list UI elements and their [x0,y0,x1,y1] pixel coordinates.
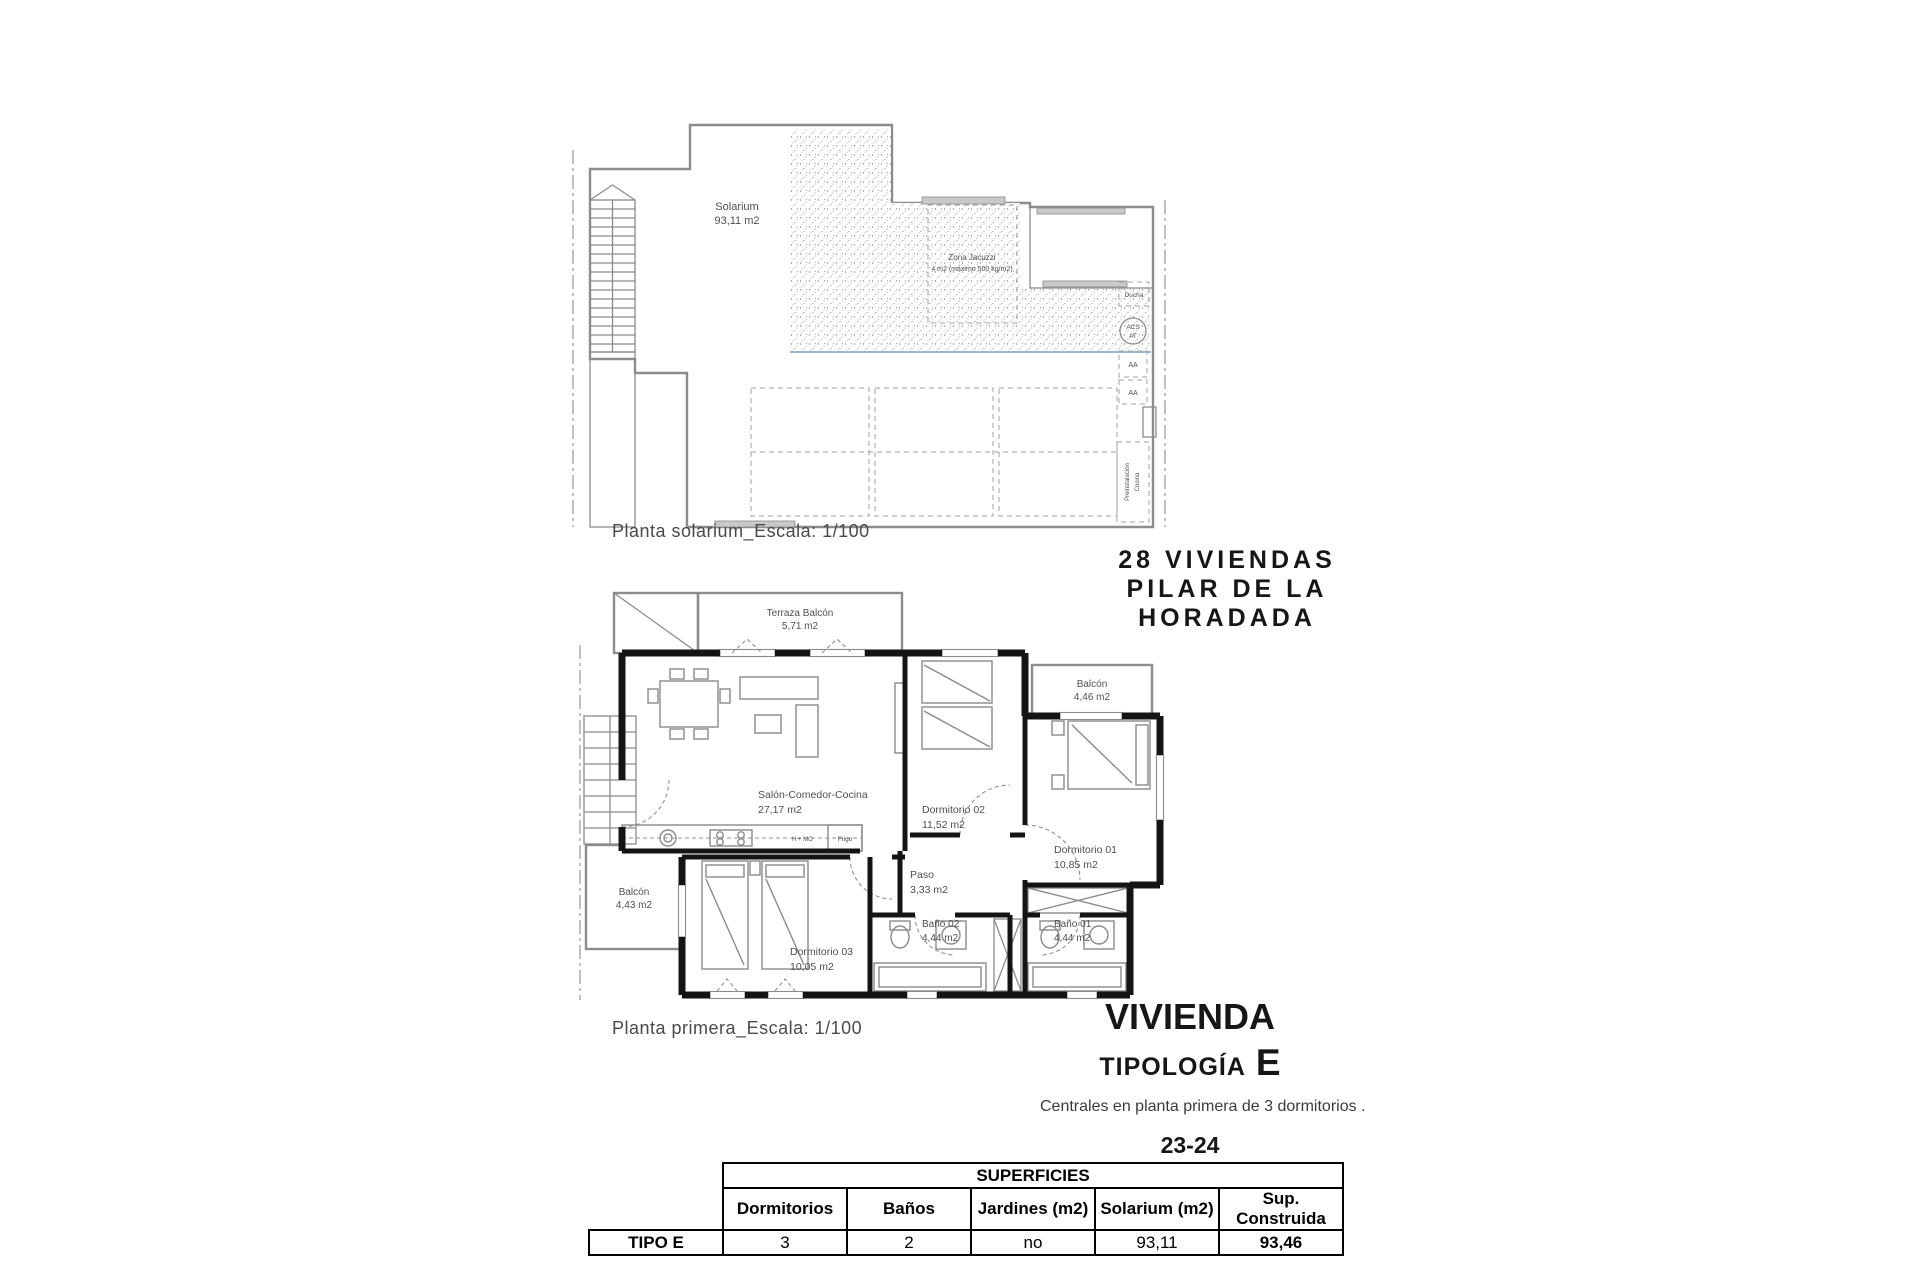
dwelling-title-block: VIVIENDA TIPOLOGÍAE Centrales en planta … [1040,998,1340,1159]
col-header-solarium: Solarium (m2) [1095,1188,1219,1230]
terraza-balcon [614,593,902,653]
row-label-tipo-e: TIPO E [589,1230,723,1255]
value-banos: 2 [847,1230,971,1255]
paso-label: Paso [910,869,934,881]
table-spacer [589,1188,723,1230]
col-header-dormitorios: Dormitorios [723,1188,847,1230]
ducha-label: Ducha [1125,292,1144,299]
balcon03-area: 4,43 m2 [616,900,653,911]
cocina-label: Cocina [1135,472,1141,491]
pergola-gravel-zone [790,129,1151,352]
jacuzzi-maxload-label: 4 m2 (máximo 500 kg/m2) [931,266,1012,273]
col-header-jardines: Jardines (m2) [971,1188,1095,1230]
table-row: TIPO E 3 2 no 93,11 93,46 [589,1230,1343,1255]
aa-label-1: AA [1128,362,1138,369]
dorm01-label: Dormitorio 01 [1054,844,1117,856]
col-header-construida: Sup. Construida [1219,1188,1343,1230]
terraza-label: Terraza Balcón [767,608,834,619]
acs-label: ACS [1126,324,1140,331]
table-group-header: SUPERFICIES [723,1163,1343,1188]
dorm02-area: 11,52 m2 [922,819,965,831]
surfaces-table: SUPERFICIES Dormitorios Baños Jardines (… [588,1162,1344,1256]
aa-unit-1: AA [1119,351,1147,377]
table-spacer [589,1163,723,1188]
tipologia-letter: E [1256,1042,1281,1083]
dorm03-label: Dormitorio 03 [790,946,853,958]
dwelling-title: VIVIENDA [1040,998,1340,1036]
side-strip [590,352,635,527]
solarium-room-area: 93,11 m2 [714,215,759,227]
balcon01-area: 4,46 m2 [1074,692,1111,703]
solarium-caption: Planta solarium_Escala: 1/100 [612,521,870,542]
acs-sub-label: AT [1129,333,1137,340]
dorm03-area: 10,05 m2 [790,961,834,973]
value-construida: 93,46 [1219,1230,1343,1255]
bano01-area: 4,44 m2 [1054,933,1091,944]
bano02-label: Baño 02 [922,919,960,930]
floor-below-dashed-outline [751,388,1117,516]
value-jardines: no [971,1230,1095,1255]
aa-label-2: AA [1128,390,1138,397]
first-floor-plan-drawing: H + MO Frigo [570,585,1170,1005]
value-solarium: 93,11 [1095,1230,1219,1255]
terraza-area: 5,71 m2 [782,621,819,632]
bano02-area: 4,44 m2 [922,933,959,944]
kitchen-preinstallation-zone: Preinstalación Cocina [1117,442,1149,522]
adjacent-roof-block [1030,207,1153,288]
jacuzzi-label: Zona Jacuzzi [948,253,995,262]
plan-sheet: Zona Jacuzzi 4 m2 (máximo 500 kg/m2) [0,0,1920,1280]
salon-label: Salón-Comedor-Cocina [758,789,868,801]
solarium-room-label: Solarium [715,201,758,213]
dwelling-subtitle: Centrales en planta primera de 3 dormito… [1040,1098,1340,1116]
dwelling-units: 23-24 [1040,1132,1340,1159]
hob-label: H + MO [792,837,813,843]
stairs [590,185,635,352]
fridge-label: Frigo [838,836,853,843]
dorm01-area: 10,85 m2 [1054,859,1098,871]
window-sill [922,197,1005,204]
solarium-plan-drawing: Zona Jacuzzi 4 m2 (máximo 500 kg/m2) [565,90,1180,535]
project-heading-line1: 28 VIVIENDAS [1112,546,1342,575]
value-dormitorios: 3 [723,1230,847,1255]
paso-area: 3,33 m2 [910,884,948,896]
balcon01-label: Balcón [1077,679,1108,690]
first-floor-caption: Planta primera_Escala: 1/100 [612,1018,862,1039]
tipologia-label: TIPOLOGÍA [1099,1053,1246,1081]
col-header-banos: Baños [847,1188,971,1230]
bano01-label: Baño 01 [1054,919,1092,930]
salon-area: 27,17 m2 [758,804,802,816]
balcon03-label: Balcón [619,887,650,898]
dorm02-label: Dormitorio 02 [922,804,985,816]
aa-unit-2: AA [1119,380,1147,404]
preinstalacion-label: Preinstalación [1125,463,1131,501]
balcon-dorm01 [1032,665,1152,716]
